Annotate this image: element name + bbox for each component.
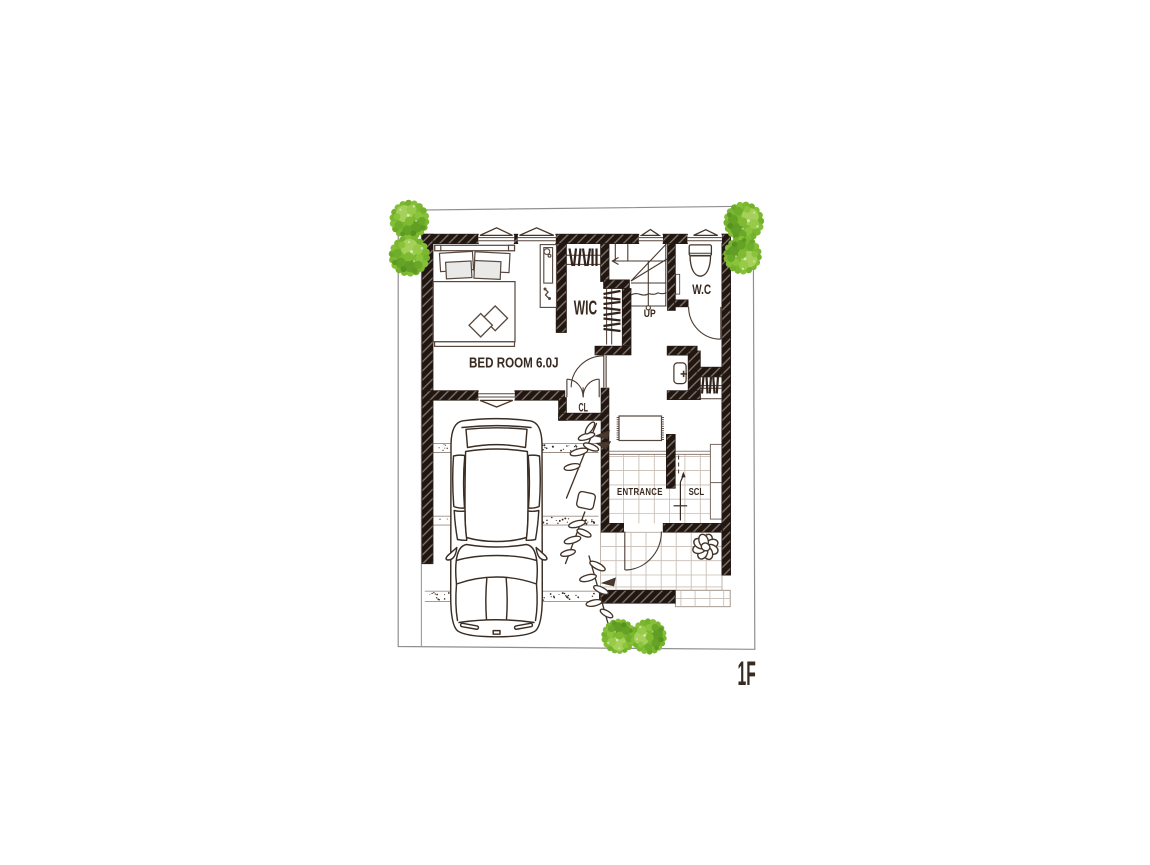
svg-text:1F: 1F: [738, 654, 756, 693]
svg-text:SCL: SCL: [689, 486, 705, 497]
svg-text:ENTRANCE: ENTRANCE: [617, 486, 663, 497]
svg-text:BED ROOM 6.0J: BED ROOM 6.0J: [469, 354, 559, 371]
svg-text:WIC: WIC: [574, 298, 597, 320]
svg-text:CL: CL: [579, 402, 589, 415]
svg-text:UP: UP: [644, 308, 656, 320]
svg-text:W.C: W.C: [692, 281, 711, 297]
